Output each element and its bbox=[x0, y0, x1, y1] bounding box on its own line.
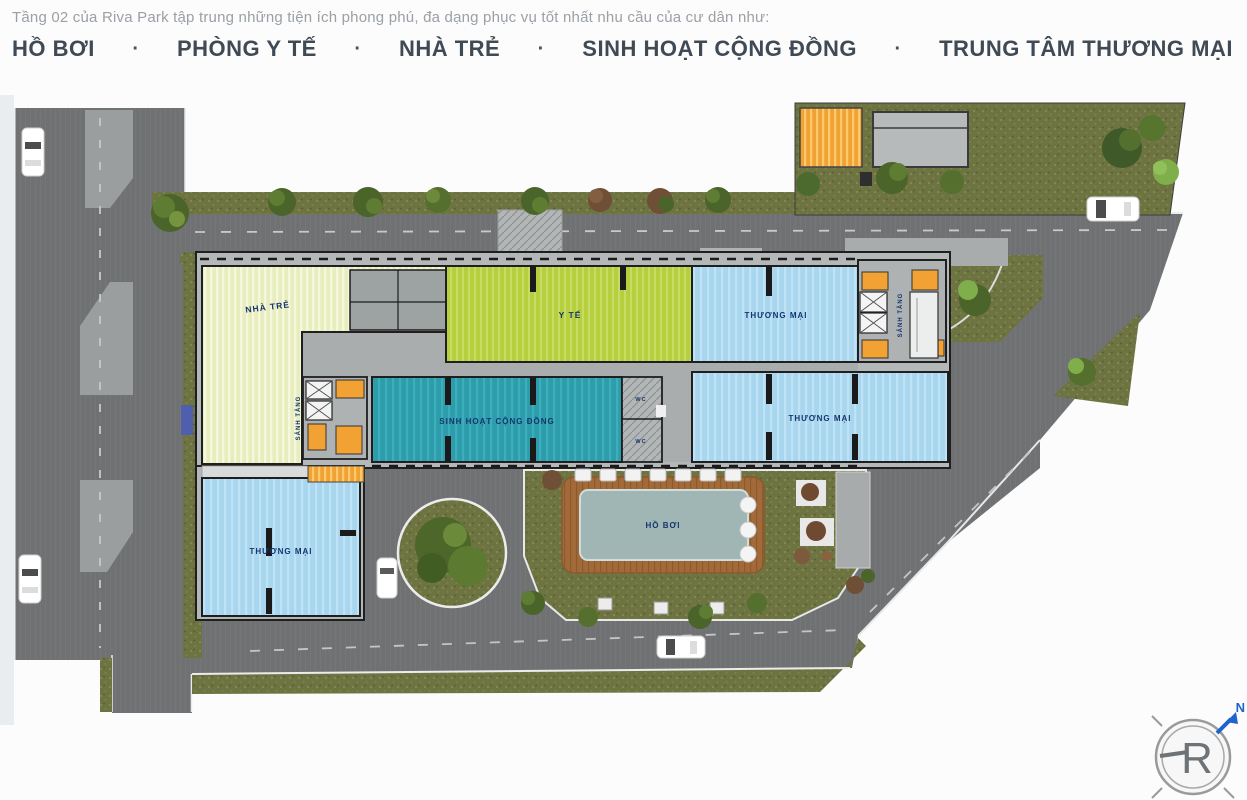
separator-dot: · bbox=[350, 38, 365, 61]
separator-dot: · bbox=[128, 38, 143, 61]
site-plan-image: NHÀ TRẺ Y TẾ THƯƠNG MẠI SẢNH TẦN bbox=[0, 0, 1247, 800]
room-thuong-mai-top: THƯƠNG MẠI bbox=[692, 266, 858, 362]
amenities-row: HỒ BƠI · PHÒNG Y TẾ · NHÀ TRẺ · SINH HOẠ… bbox=[0, 26, 1247, 62]
elevator-block bbox=[308, 424, 326, 450]
elevator-block bbox=[336, 380, 364, 398]
label-wc-2: WC bbox=[635, 439, 646, 445]
separator-dot: · bbox=[890, 38, 905, 61]
lobby-core-left: SẢNH TẦNG bbox=[295, 377, 367, 459]
room-sinh-hoat-cong-dong: SINH HOẠT CỘNG ĐỒNG bbox=[372, 377, 622, 462]
label-sinh-hoat-cong-dong: SINH HOẠT CỘNG ĐỒNG bbox=[439, 416, 554, 426]
label-thuong-mai-right: THƯƠNG MẠI bbox=[788, 414, 851, 423]
car bbox=[22, 128, 44, 176]
elevator-block bbox=[912, 270, 938, 290]
intro-text: Tầng 02 của Riva Park tập trung những ti… bbox=[0, 0, 1247, 26]
room-thuong-mai-right: THƯƠNG MẠI bbox=[692, 372, 948, 462]
amenity-phong-y-te: PHÒNG Y TẾ bbox=[177, 36, 317, 62]
orange-canopy-building bbox=[800, 108, 862, 167]
gray-roof-building bbox=[873, 112, 968, 167]
wc-block: WC WC bbox=[622, 377, 666, 462]
label-sanh-tang-left: SẢNH TẦNG bbox=[295, 396, 302, 441]
bus-stop-marker bbox=[181, 405, 193, 435]
elevator-block bbox=[336, 426, 362, 454]
car bbox=[377, 558, 397, 598]
label-wc-1: WC bbox=[635, 397, 646, 403]
floorplan-page: NHÀ TRẺ Y TẾ THƯƠNG MẠI SẢNH TẦN bbox=[0, 0, 1247, 800]
label-ho-boi: HỒ BƠI bbox=[645, 520, 680, 530]
amenity-sinh-hoat-cong-dong: SINH HOẠT CỘNG ĐỒNG bbox=[582, 36, 857, 62]
room-y-te: Y TẾ bbox=[446, 266, 692, 362]
pool-area: HỒ BƠI bbox=[524, 469, 870, 620]
compass-logo-letter: R bbox=[1181, 734, 1213, 783]
label-thuong-mai-top: THƯƠNG MẠI bbox=[744, 311, 807, 320]
amenity-ho-boi: HỒ BƠI bbox=[12, 36, 95, 62]
elevator-block bbox=[862, 272, 888, 290]
separator-dot: · bbox=[534, 38, 549, 61]
label-sanh-tang-right: SẢNH TẦNG bbox=[897, 293, 904, 338]
header: Tầng 02 của Riva Park tập trung những ti… bbox=[0, 0, 1247, 62]
label-thuong-mai-bottom: THƯƠNG MẠI bbox=[249, 547, 312, 556]
amenity-trung-tam-thuong-mai: TRUNG TÂM THƯƠNG MẠI bbox=[939, 36, 1233, 62]
car bbox=[657, 636, 705, 658]
left-margin-strip bbox=[0, 95, 14, 725]
elevator-block bbox=[862, 340, 888, 358]
north-label: N bbox=[1236, 700, 1245, 715]
room-thuong-mai-bottom: THƯƠNG MẠI bbox=[202, 478, 360, 616]
car bbox=[19, 555, 41, 603]
round-garden-island bbox=[398, 499, 506, 607]
amenity-nha-tre: NHÀ TRẺ bbox=[399, 36, 500, 62]
orange-awning bbox=[308, 466, 364, 482]
lobby-core-right: SẢNH TẦNG bbox=[858, 260, 946, 362]
label-y-te: Y TẾ bbox=[559, 310, 582, 320]
car bbox=[1087, 197, 1139, 221]
